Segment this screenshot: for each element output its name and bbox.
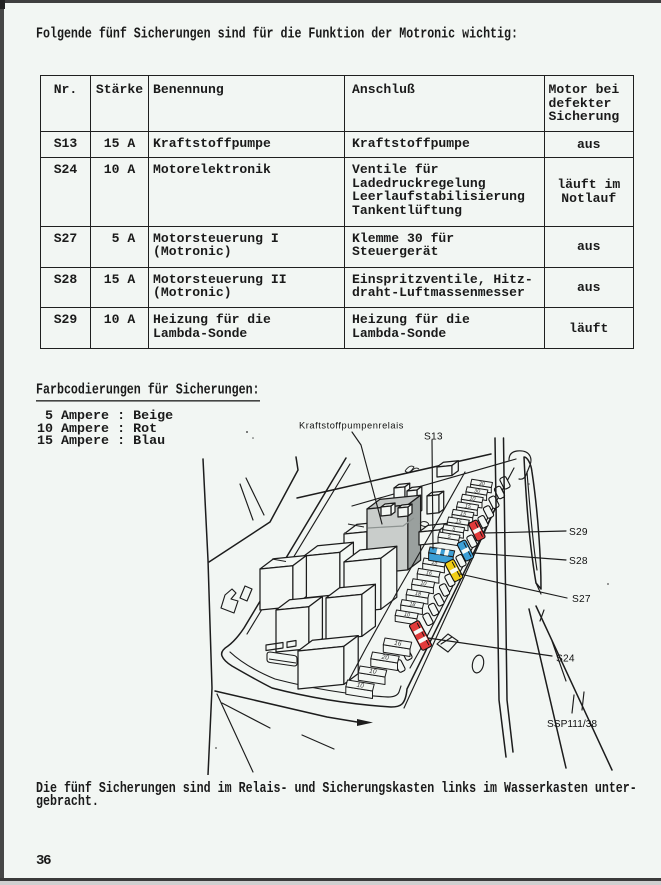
svg-text:16: 16 xyxy=(425,570,432,577)
svg-text:Kraftstoffpumpenrelais: Kraftstoffpumpenrelais xyxy=(299,421,404,431)
svg-text:S28: S28 xyxy=(569,556,588,567)
svg-text:18: 18 xyxy=(414,591,421,598)
svg-text:16: 16 xyxy=(394,640,403,648)
svg-text:10: 10 xyxy=(356,682,365,690)
svg-text:S29: S29 xyxy=(569,527,588,538)
svg-text:18: 18 xyxy=(409,601,416,608)
svg-text:SSP111/38: SSP111/38 xyxy=(547,719,597,730)
svg-text:30: 30 xyxy=(474,488,481,495)
svg-text:10: 10 xyxy=(420,581,427,588)
svg-text:30: 30 xyxy=(478,481,485,488)
svg-text:S13: S13 xyxy=(424,432,443,443)
svg-text:20: 20 xyxy=(380,654,390,662)
svg-text:S24: S24 xyxy=(556,654,575,665)
svg-text:S27: S27 xyxy=(572,594,591,605)
svg-text:10: 10 xyxy=(403,612,410,619)
svg-text:10: 10 xyxy=(469,496,476,503)
svg-text:10: 10 xyxy=(369,668,378,676)
